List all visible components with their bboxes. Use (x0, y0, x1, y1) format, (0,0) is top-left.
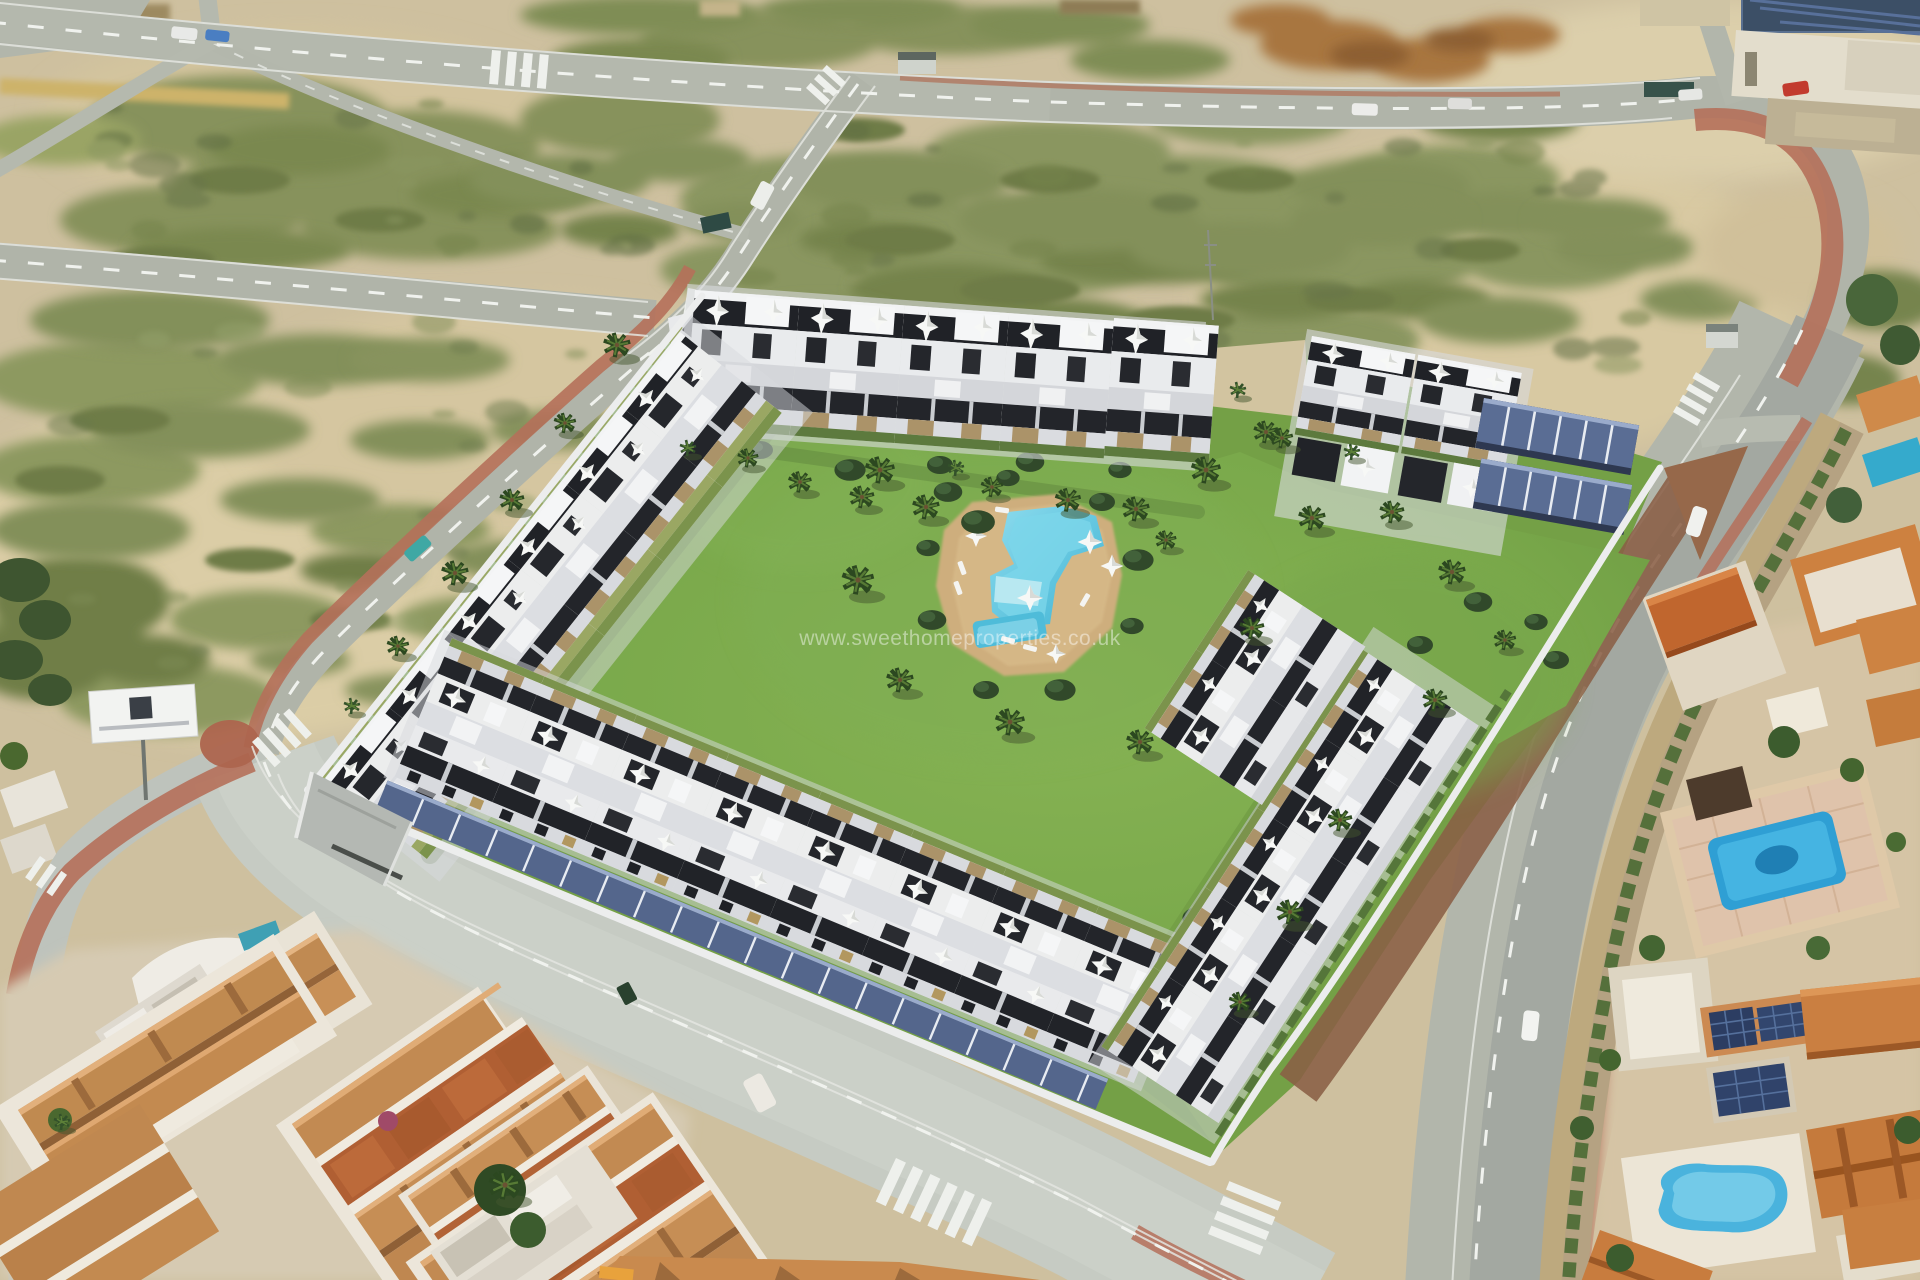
svg-text:www.sweethomeproperties.co.uk: www.sweethomeproperties.co.uk (798, 627, 1120, 650)
